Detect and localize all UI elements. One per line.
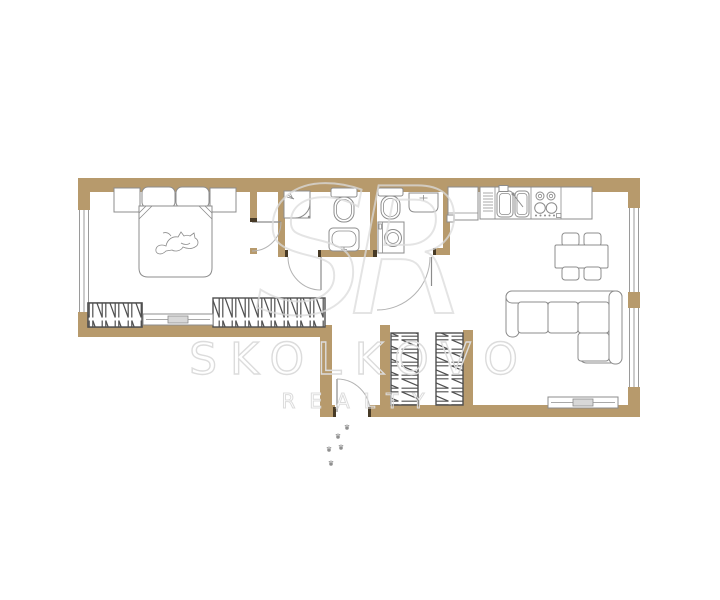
cat-paw-prints: [327, 425, 350, 466]
soap-dispenser: [499, 186, 508, 192]
sofa-cushion-corner: [578, 333, 609, 361]
dining-chair-1: [562, 233, 579, 246]
bathroom-1: [284, 188, 359, 252]
entrance-door: [337, 379, 370, 412]
wall-closet-left: [380, 325, 390, 407]
wall-bedroom-right-stub: [250, 192, 257, 222]
washing-machine: [378, 222, 404, 253]
dining-chair-4: [584, 267, 601, 280]
washbasin-1: [329, 228, 359, 252]
closet: [391, 333, 463, 405]
wall-closet-right: [463, 330, 473, 407]
closet-wardrobe-1: [391, 333, 418, 405]
door-bathroom-1: [288, 257, 321, 290]
window-left: [78, 210, 90, 312]
pillow-1: [142, 187, 175, 208]
sofa-cushion-2: [548, 302, 578, 333]
bathroom-2: [378, 188, 438, 253]
wardrobe-bedroom-long: [213, 298, 325, 327]
toilet-1: [331, 188, 357, 222]
radiator-living: [548, 397, 618, 408]
pillow-2: [176, 187, 209, 208]
closet-wardrobe-2: [436, 333, 463, 405]
wall-right-top: [628, 192, 640, 208]
double-bed: [139, 206, 212, 277]
door-bedroom: [252, 222, 281, 251]
wall-left-upper: [78, 192, 90, 210]
wall-bathroom-divider: [370, 192, 377, 257]
dish-rack: [483, 193, 493, 211]
refrigerator: [447, 187, 478, 222]
nightstand-left: [114, 188, 140, 212]
dining-chair-3: [562, 267, 579, 280]
sofa-cushion-3: [578, 302, 609, 333]
wall-bottom-left-stub: [320, 405, 335, 417]
sofa-side-right: [609, 291, 622, 364]
nightstand-right: [210, 188, 236, 212]
washbasin-2: [409, 193, 438, 212]
wall-right-bottom: [628, 387, 640, 417]
dining-area: [555, 233, 608, 280]
sofa-back: [506, 291, 622, 303]
floor-plan-drawing: [0, 0, 720, 600]
corner-sofa: [506, 291, 622, 364]
radiator-bedroom: [143, 314, 213, 325]
shower-cabin: [284, 191, 310, 218]
kitchen: [447, 186, 592, 223]
dining-table: [555, 245, 608, 268]
floor-plan-image: SR SKOLKOVO REALTY: [0, 0, 720, 600]
sofa-cushion-1: [518, 302, 548, 333]
dining-chair-2: [584, 233, 601, 246]
wall-right-mid: [628, 292, 640, 308]
window-right-1: [628, 208, 640, 292]
toilet-2: [378, 188, 403, 219]
door-bathroom-2: [377, 257, 430, 310]
wardrobe-bedroom-left-hatch: [88, 303, 142, 327]
window-right-2: [628, 308, 640, 387]
